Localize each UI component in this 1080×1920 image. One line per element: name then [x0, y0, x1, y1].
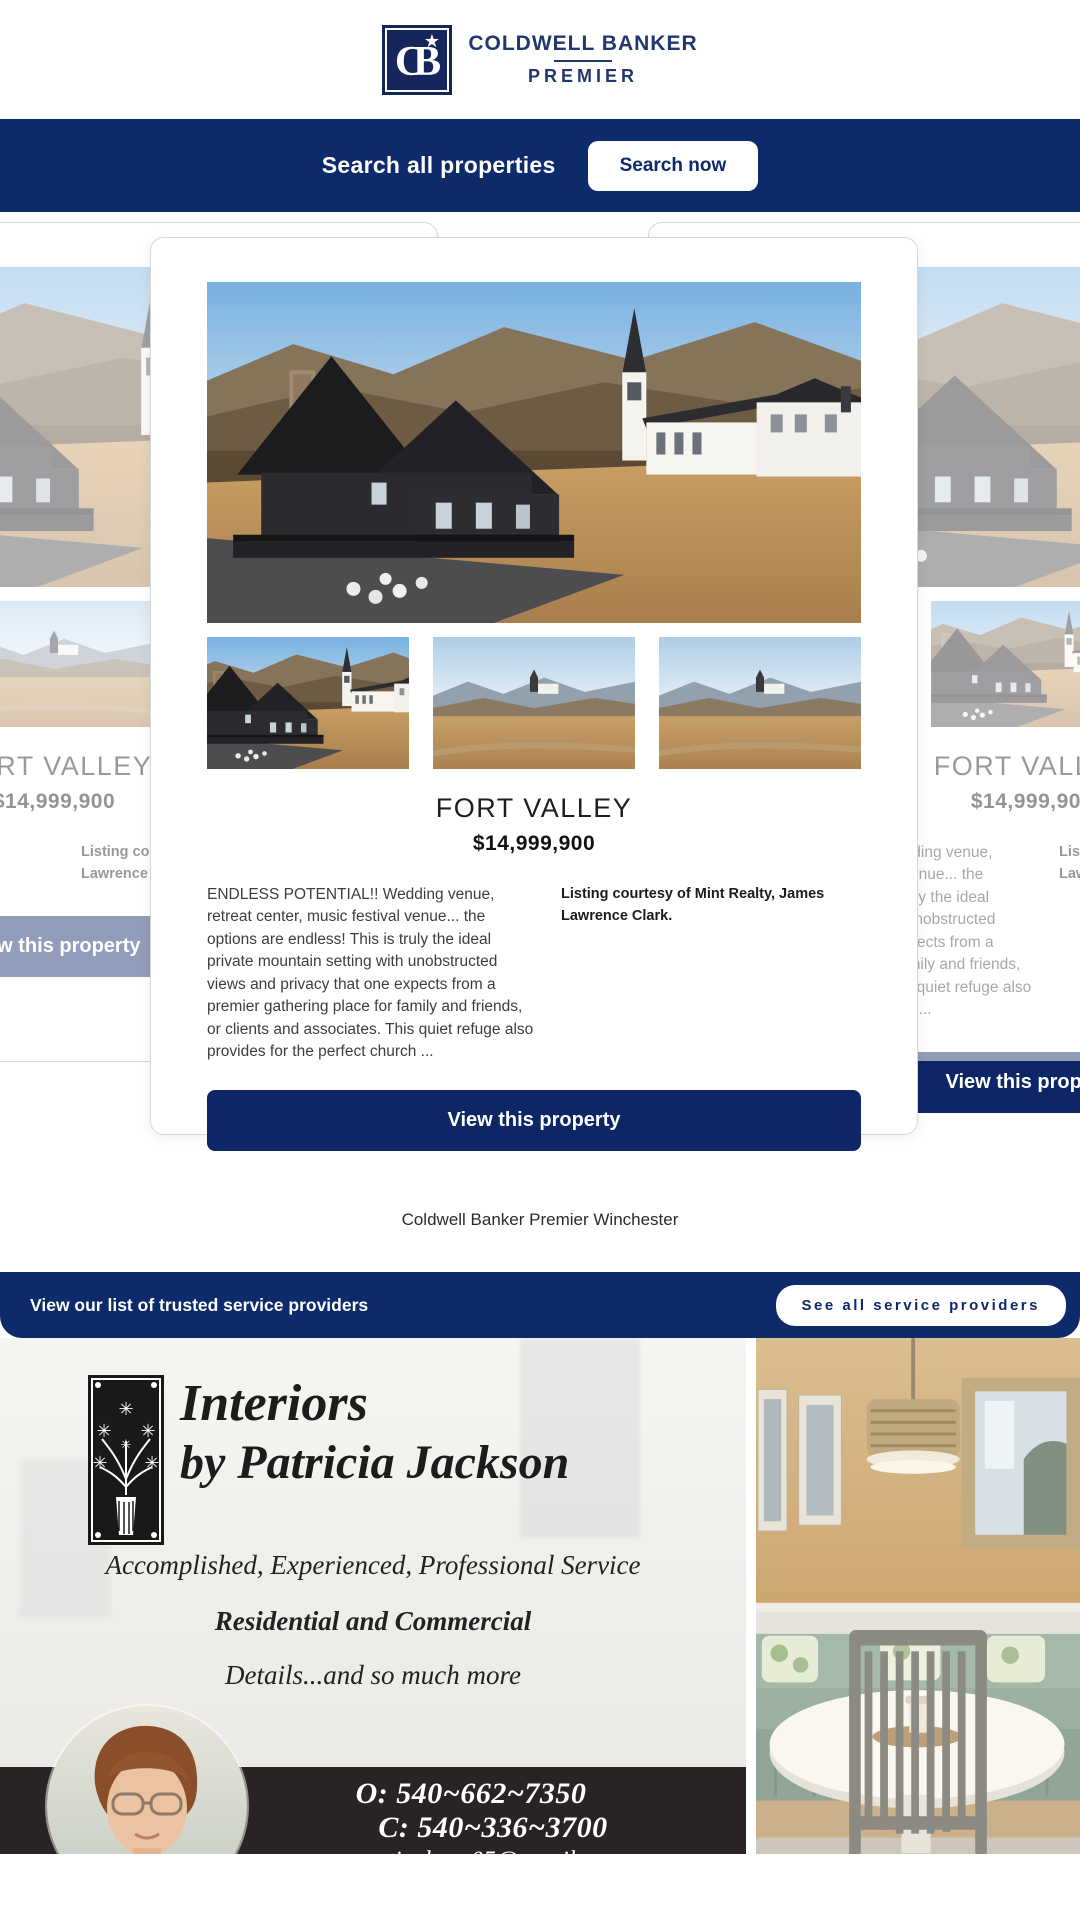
ad-headline-line1: Interiors	[180, 1374, 569, 1433]
brand-logo[interactable]: CB ★ COLDWELL BANKER PREMIER	[382, 25, 697, 95]
view-property-button[interactable]: View this property	[207, 1090, 861, 1151]
agent-portrait	[47, 1706, 247, 1854]
thumbnail-3[interactable]	[659, 637, 861, 769]
thumbnail-2[interactable]	[931, 601, 1080, 727]
ad-interior-photo	[746, 1338, 1080, 1854]
ad-tagline-1: Accomplished, Experienced, Professional …	[0, 1550, 746, 1581]
page: CB ★ COLDWELL BANKER PREMIER Search all …	[0, 0, 1080, 1920]
service-providers-label: View our list of trusted service provide…	[30, 1295, 368, 1316]
phone-numbers: O: 540~662~7350C: 540~336~3700	[250, 1777, 736, 1845]
floral-emblem-icon	[88, 1375, 164, 1545]
ad-tagline-2: Residential and Commercial	[0, 1606, 746, 1637]
email-address: patjackson05@gmail.com	[250, 1847, 736, 1854]
ad-headline-line2: by Patricia Jackson	[180, 1435, 569, 1490]
brand-subname: PREMIER	[468, 66, 697, 87]
property-title: FORT VALLEY	[207, 793, 861, 824]
ad-headline: Interiors by Patricia Jackson	[180, 1374, 569, 1490]
cell-phone: C: 540~336~3700	[378, 1811, 607, 1845]
brand-name: COLDWELL BANKER	[468, 32, 697, 56]
brand-wordmark: COLDWELL BANKER PREMIER	[468, 32, 697, 87]
site-header: CB ★ COLDWELL BANKER PREMIER	[0, 0, 1080, 119]
see-all-service-providers-button[interactable]: See all service providers	[776, 1285, 1066, 1326]
ad-banner[interactable]: Interiors by Patricia Jackson Accomplish…	[0, 1338, 1080, 1854]
ad-tagline-3: Details...and so much more	[0, 1660, 746, 1691]
thumbnail-2[interactable]	[433, 637, 635, 769]
thumbnail-2[interactable]	[0, 601, 155, 727]
property-carousel: FORT VALLEY $14,999,900 ENDLESS POTENTIA…	[0, 212, 1080, 1167]
thumbnail-1[interactable]	[207, 637, 409, 769]
ad-content-panel: Interiors by Patricia Jackson Accomplish…	[0, 1338, 746, 1854]
search-banner: Search all properties Search now	[0, 119, 1080, 212]
listing-courtesy: Listing courtesy of Mint Realty, James L…	[561, 884, 861, 1064]
search-label: Search all properties	[322, 152, 556, 179]
star-icon: ★	[424, 31, 440, 51]
brand-divider	[554, 60, 612, 62]
property-price: $14,999,900	[207, 832, 861, 856]
cb-monogram-icon: CB ★	[382, 25, 452, 95]
listing-courtesy: Listing courtesy of Mint Realty, James L…	[1059, 842, 1080, 1022]
property-card-active: FORT VALLEY $14,999,900 ENDLESS POTENTIA…	[150, 237, 918, 1135]
thumbnail-row	[207, 637, 861, 769]
search-now-button[interactable]: Search now	[588, 141, 759, 191]
main-property-photo[interactable]	[207, 282, 861, 623]
office-name: Coldwell Banker Premier Winchester	[402, 1210, 679, 1230]
office-phone: O: 540~662~7350	[356, 1777, 587, 1811]
service-providers-bar: View our list of trusted service provide…	[0, 1272, 1080, 1338]
office-row: Coldwell Banker Premier Winchester	[0, 1167, 1080, 1272]
property-description: ENDLESS POTENTIAL!! Wedding venue, retre…	[207, 884, 537, 1064]
